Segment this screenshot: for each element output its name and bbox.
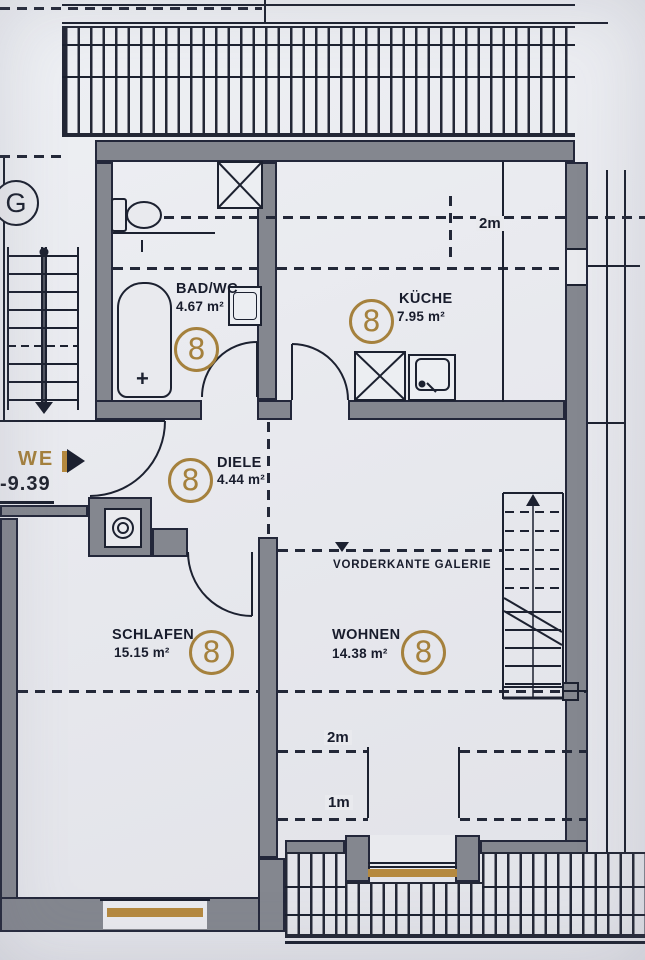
galerie-stairs-arrow-icon [526, 494, 540, 506]
room-area-diele: 4.44 m² [217, 472, 265, 487]
kitchen-sink [409, 355, 455, 400]
room-number-diele-value: 8 [181, 466, 199, 495]
room-label-schlafen: SCHLAFEN [112, 627, 194, 643]
exterior-stairs [8, 247, 78, 414]
stairs-direction-arrow-icon [35, 402, 53, 414]
room-label-kueche: KÜCHE [399, 291, 453, 307]
floor-plan: G 2m VORDERKANTE GALERIE 2m 1m + [0, 0, 645, 960]
room-number-wohnen-value: 8 [414, 638, 432, 667]
room-label-diele: DIELE [217, 455, 262, 471]
room-number-schlafen: 8 [189, 630, 234, 675]
room-number-badwc-value: 8 [187, 335, 205, 364]
room-area-wohnen: 14.38 m² [332, 646, 388, 661]
schlafen-door [188, 552, 252, 616]
room-area-kueche: 7.95 m² [397, 309, 445, 324]
room-number-wohnen: 8 [401, 630, 446, 675]
room-label-wohnen: WOHNEN [332, 627, 400, 643]
plan-linework [0, 0, 645, 960]
galerie-stairs [503, 493, 588, 700]
elevation-value: -9.39 [0, 473, 51, 496]
room-label-badwc: BAD/WC [176, 281, 238, 297]
room-number-kueche: 8 [349, 299, 394, 344]
room-number-diele: 8 [168, 458, 213, 503]
shaft-box-bad [218, 162, 262, 208]
entry-door [90, 421, 165, 496]
kueche-door [292, 344, 348, 400]
shaft-box-kueche [355, 352, 405, 400]
unit-arrow-icon [67, 449, 85, 473]
room-number-schlafen-value: 8 [202, 638, 220, 667]
room-number-badwc: 8 [174, 327, 219, 372]
room-number-kueche-value: 8 [362, 307, 380, 336]
room-area-schlafen: 15.15 m² [114, 645, 170, 660]
elevation-underline [0, 501, 54, 504]
room-area-badwc: 4.67 m² [176, 299, 224, 314]
toilet [112, 199, 161, 252]
